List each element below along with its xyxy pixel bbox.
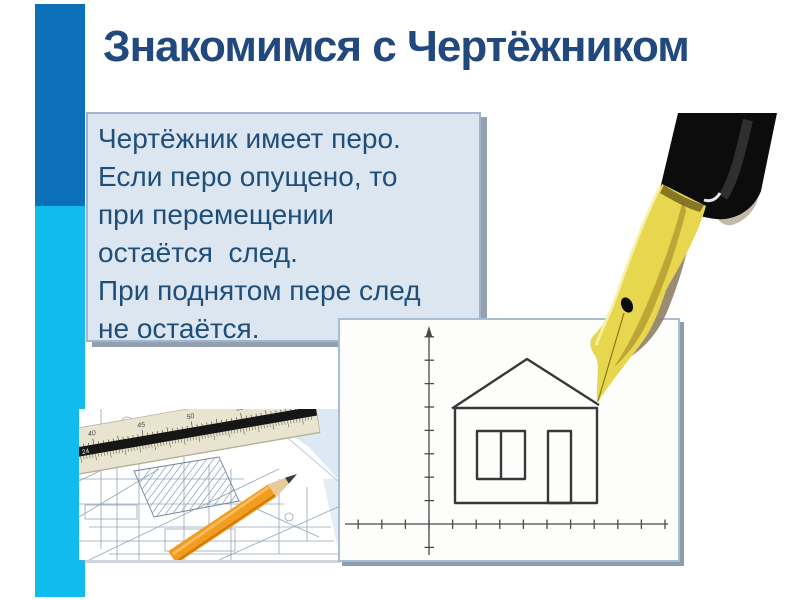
paper-sheet-tint-2: [323, 479, 338, 549]
accent-bar-top: [35, 4, 85, 206]
house: [452, 359, 599, 503]
house-door: [548, 431, 571, 503]
ruler-number: 50: [186, 413, 195, 421]
blueprint-photo: 40 45 50 55 60 24 604-I: [79, 409, 338, 560]
y-axis-arrow: [426, 326, 433, 337]
note-line: Чертёжник имеет перо.: [98, 120, 473, 158]
note-line: Если перо опущено, то: [98, 158, 473, 196]
house-roof: [452, 359, 599, 409]
blueprint-photo-art: 40 45 50 55 60 24 604-I: [79, 409, 338, 560]
ruler-number: 45: [137, 421, 146, 429]
note-line: при перемещении: [98, 196, 473, 234]
note-box: Чертёжник имеет перо. Если перо опущено,…: [86, 112, 481, 342]
scale-ruler: 40 45 50 55 60 24 604-I: [79, 409, 320, 475]
slide-title: Знакомимся с Чертёжником: [103, 22, 793, 72]
note-line: остаётся след.: [98, 234, 473, 272]
pen-nib: [590, 184, 706, 404]
ruler-number: 40: [88, 430, 97, 438]
note-line: При поднятом пере след: [98, 272, 473, 310]
accent-bar-bottom: [35, 206, 85, 597]
pen-image: [588, 105, 788, 410]
